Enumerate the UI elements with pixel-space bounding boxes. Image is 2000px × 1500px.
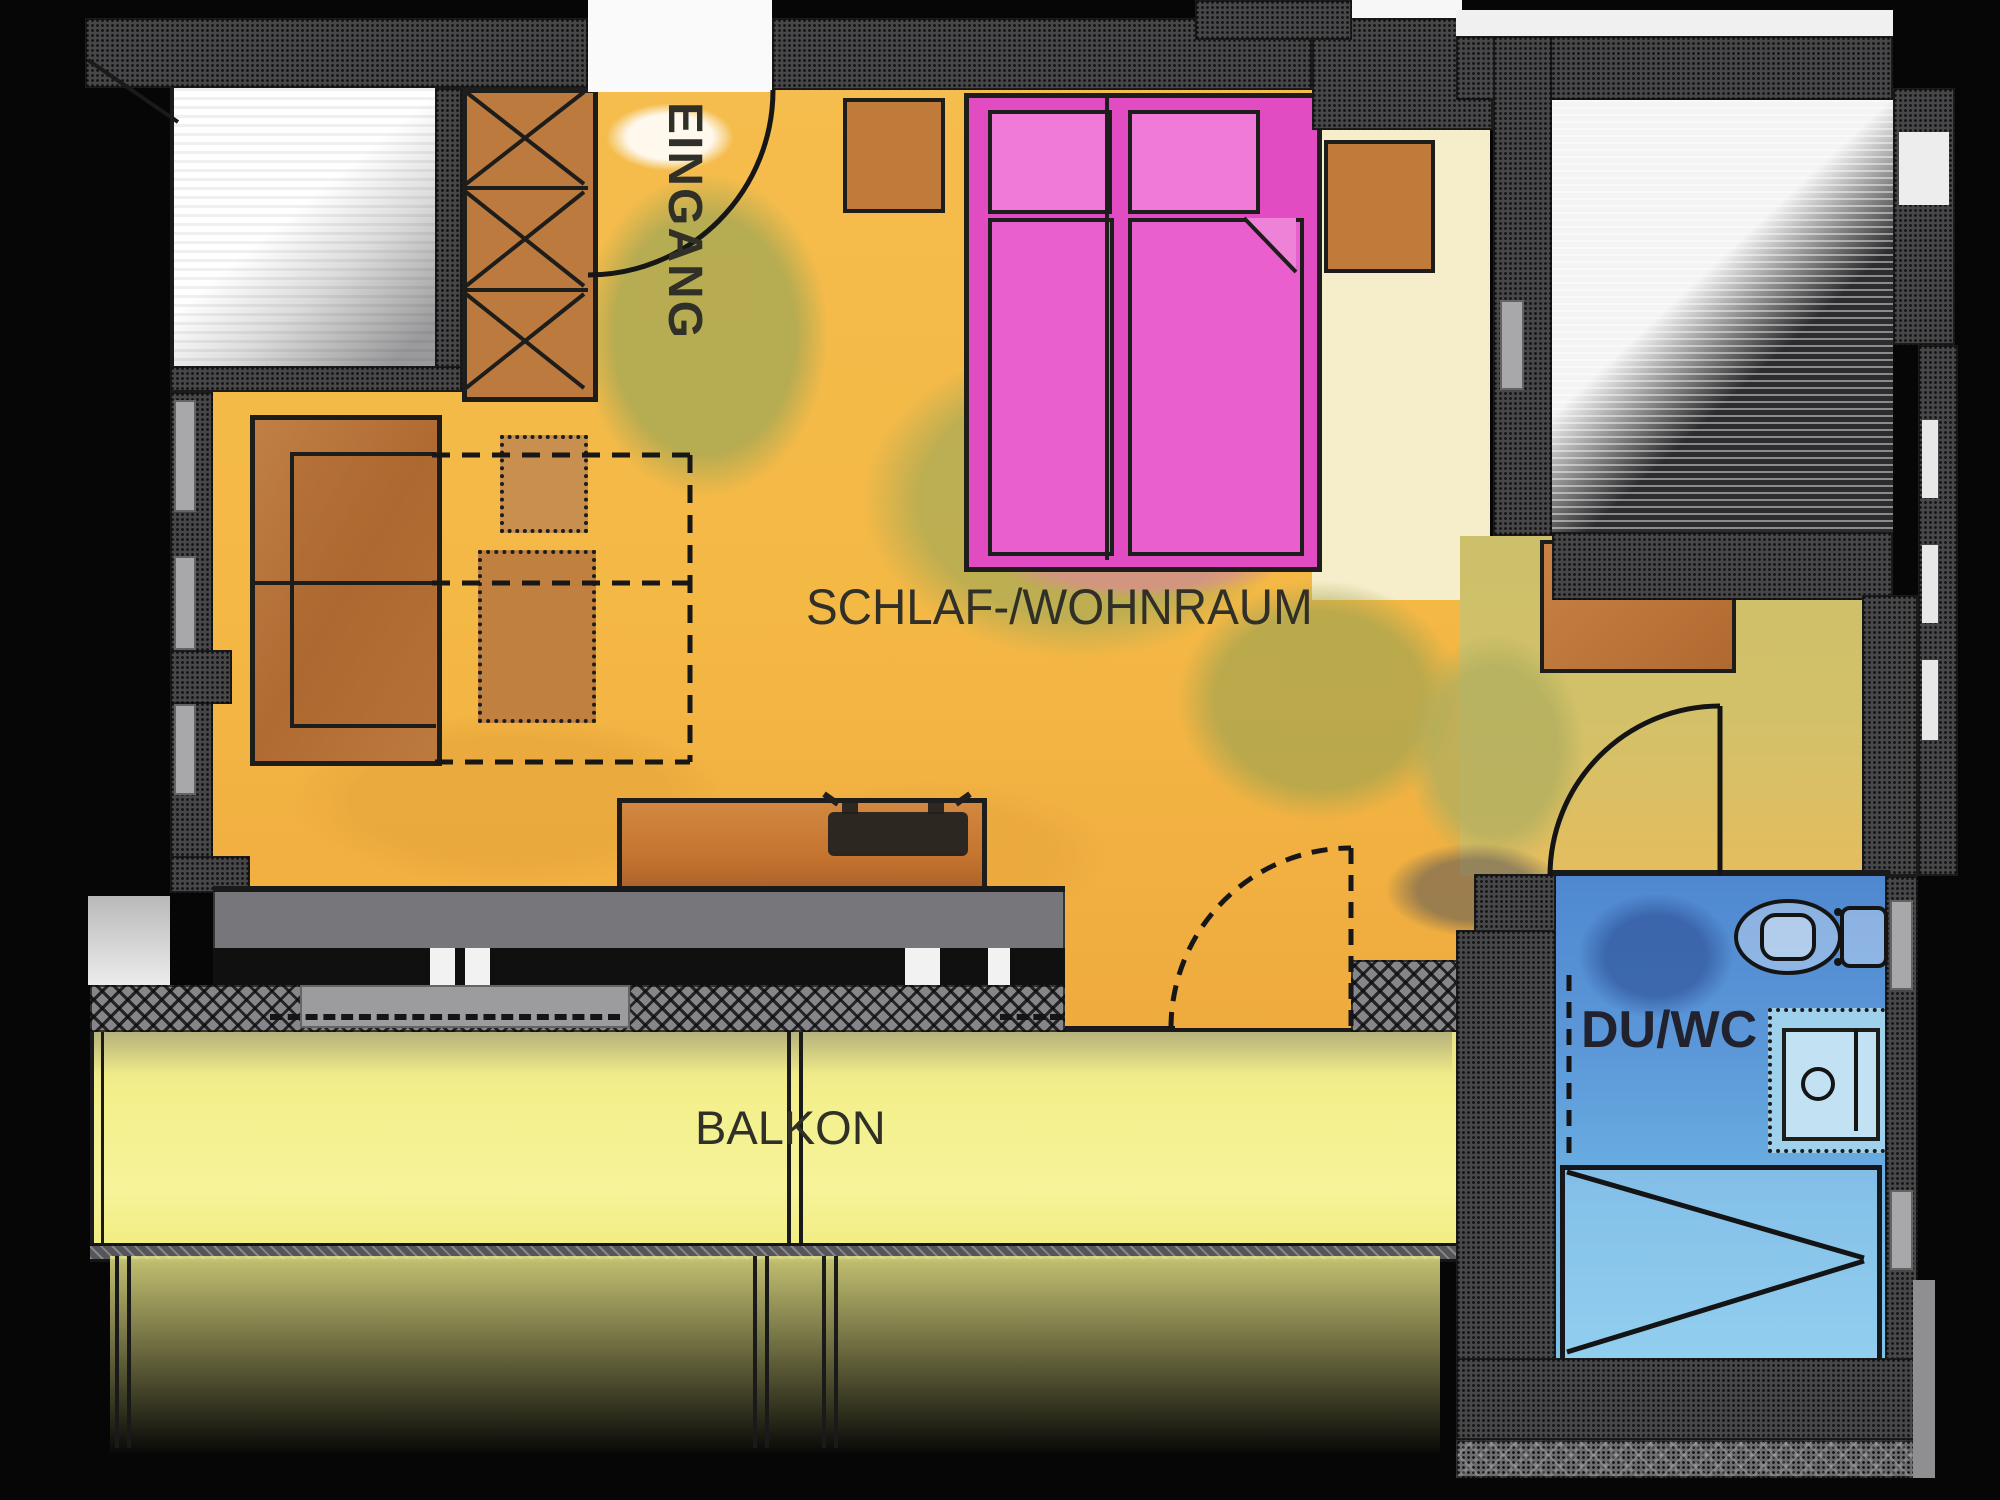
- facade-window-slit: [1922, 545, 1938, 623]
- balcony-post: [127, 1256, 131, 1448]
- facade-window-slit: [1922, 660, 1938, 740]
- window-mullion-gap: [430, 948, 455, 985]
- sliding-door-dashed: [270, 1014, 620, 1020]
- shower-tray: [1560, 1165, 1882, 1368]
- nightstand: [843, 98, 945, 213]
- neighbor-door-inset: [1500, 300, 1524, 390]
- bath-bottom-hatch: [1456, 1440, 1935, 1478]
- sill-block-right: [1351, 960, 1460, 1032]
- tv-sideboard: [617, 798, 987, 898]
- wall-void-right: [435, 88, 462, 392]
- floor-plan: EINGANG SCHLAF-/WOHNRAUM BALKON DU/WC: [0, 0, 2000, 1500]
- threshold-line: [1065, 1026, 1175, 1031]
- window-band-edge: [213, 886, 1065, 892]
- facade-window-slit: [1922, 420, 1938, 498]
- window-left: [174, 556, 196, 650]
- window-mullion-gap: [465, 948, 490, 985]
- neighbor-paper-strip: [1456, 10, 1893, 36]
- label-living-room: SCHLAF-/WOHNRAUM: [806, 578, 1313, 636]
- neighbor-window-gap: [1899, 132, 1949, 205]
- side-table: [500, 435, 588, 533]
- bath-left-wall: [1456, 930, 1556, 1362]
- bath-threshold-line: [1548, 870, 1890, 876]
- paper-left-bottom: [88, 896, 170, 985]
- neighbor-right-wall: [1893, 88, 1955, 345]
- label-bath: DU/WC: [1581, 1000, 1757, 1060]
- mattress-with-fold: [1128, 218, 1304, 556]
- balcony-spill-wash: [110, 1256, 1440, 1456]
- label-entrance: EINGANG: [657, 102, 712, 340]
- balcony-post: [834, 1256, 838, 1448]
- wall-void-bottom: [170, 366, 462, 392]
- neighbor-left-wall: [1493, 36, 1552, 536]
- nightstand: [1324, 140, 1435, 273]
- bath-bottom-mass: [1456, 1358, 1935, 1440]
- niche-right-wall: [1862, 595, 1918, 876]
- bottom-right-slab: [1913, 1280, 1935, 1478]
- pillow: [1128, 110, 1260, 214]
- sliding-door-dashed: [1000, 1014, 1062, 1020]
- coffee-table: [478, 550, 596, 723]
- balcony-inner-left-line: [101, 1032, 104, 1256]
- bath-right-inset: [1890, 1190, 1913, 1270]
- window-mullion-gap: [905, 948, 940, 985]
- window-left: [174, 704, 196, 795]
- wall-top-left: [85, 18, 588, 88]
- balcony-sill-light: [300, 985, 630, 1028]
- wall-left-pier: [170, 650, 232, 704]
- balcony-post: [822, 1256, 826, 1448]
- wall-fragment-above: [1195, 0, 1352, 40]
- neighbor-interior: [1552, 100, 1893, 532]
- pillow: [988, 110, 1112, 214]
- entrance-opening: [588, 0, 772, 92]
- mattress: [988, 218, 1114, 556]
- void-left-line: [170, 88, 174, 392]
- bath-right-inset: [1890, 900, 1913, 990]
- balcony-post: [753, 1256, 757, 1448]
- wardrobe: [462, 88, 598, 402]
- window-left: [174, 400, 196, 512]
- washbasin: [1782, 1028, 1880, 1141]
- window-mullion-gap: [988, 948, 1010, 985]
- neighbor-bottom-wall: [1552, 532, 1893, 600]
- balcony-post: [765, 1256, 769, 1448]
- sofa-seat: [290, 452, 436, 728]
- bath-door-pier: [1474, 874, 1556, 935]
- balcony-post: [115, 1256, 119, 1448]
- label-balcony: BALKON: [695, 1100, 886, 1155]
- void-shaft-interior: [174, 88, 435, 366]
- balcony-top-shadow: [94, 1032, 1452, 1074]
